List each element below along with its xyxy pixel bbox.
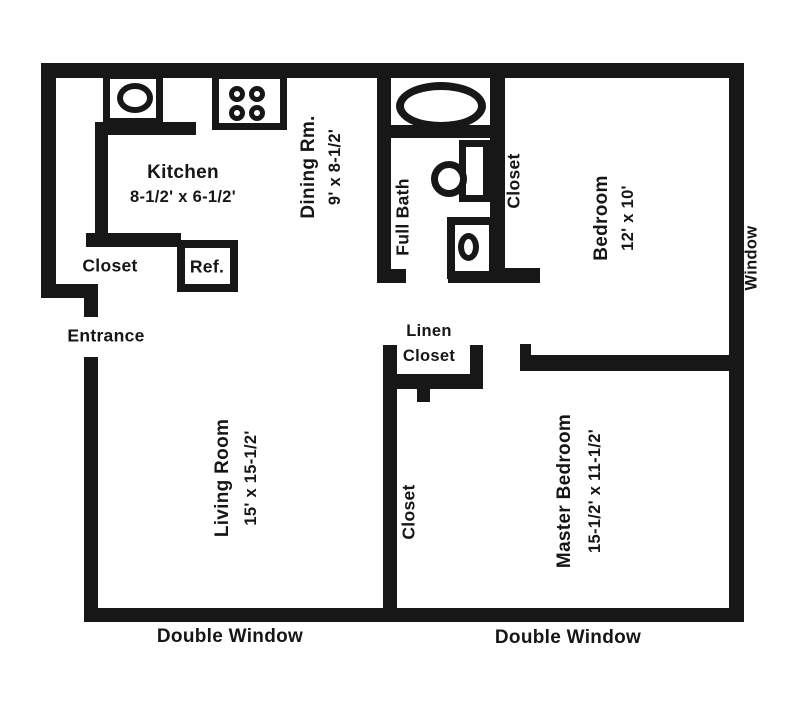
wall-entry-closet-top xyxy=(86,233,181,247)
floor-plan: Kitchen 8-1/2' x 6-1/2' Closet Ref. Entr… xyxy=(0,0,800,719)
kitchen-label: Kitchen 8-1/2' x 6-1/2' xyxy=(130,160,236,210)
living-room-dims: 15' x 15-1/2' xyxy=(237,419,266,537)
stove-burner-icon xyxy=(229,86,245,102)
linen-closet-label: Linen Closet xyxy=(403,319,455,369)
master-bedroom-label: Master Bedroom 15-1/2' x 11-1/2' xyxy=(550,414,610,568)
wall-dining-bath xyxy=(377,70,391,283)
living-room-label: Living Room 15' x 15-1/2' xyxy=(208,419,266,537)
dining-room-label: Dining Rm. 9' x 8-1/2' xyxy=(296,115,348,218)
kitchen-sink-icon xyxy=(117,83,153,113)
toilet-bowl-icon xyxy=(458,233,479,261)
master-bedroom-name: Master Bedroom xyxy=(550,414,580,568)
window-label: Window xyxy=(743,226,762,291)
stove-burner-icon xyxy=(249,86,265,102)
stove-burner-icon xyxy=(229,105,245,121)
bedroom-dims: 12' x 10' xyxy=(615,175,642,261)
bedroom-name: Bedroom xyxy=(588,175,615,261)
wall-linen-closet-bottom xyxy=(388,374,483,389)
wall-linen-closet-right-stub xyxy=(470,345,483,376)
wall-entrance-stub xyxy=(84,284,98,317)
kitchen-dims: 8-1/2' x 6-1/2' xyxy=(130,185,236,210)
kitchen-name: Kitchen xyxy=(130,160,236,185)
master-closet-label: Closet xyxy=(399,484,420,539)
double-window-left-label: Double Window xyxy=(157,626,303,648)
wall-linen-door-tick xyxy=(417,389,430,402)
bathtub-icon xyxy=(396,82,486,130)
wall-bath-door-foot xyxy=(377,269,406,283)
bedroom-label: Bedroom 12' x 10' xyxy=(588,175,642,261)
double-window-right-label: Double Window xyxy=(495,627,641,649)
wall-outer-right xyxy=(729,63,744,622)
entry-closet-label: Closet xyxy=(82,256,137,277)
dining-room-dims: 9' x 8-1/2' xyxy=(322,115,348,218)
wall-outer-bottom xyxy=(84,608,744,622)
linen-closet-line2: Closet xyxy=(403,344,455,369)
dining-room-name: Dining Rm. xyxy=(296,115,322,218)
linen-closet-line1: Linen xyxy=(403,319,455,344)
stove-counter xyxy=(212,72,287,130)
wall-outer-left-upper xyxy=(41,63,56,298)
stove-burner-icon xyxy=(249,105,265,121)
wall-kitchen-left xyxy=(95,122,108,247)
master-bedroom-dims: 15-1/2' x 11-1/2' xyxy=(580,414,610,568)
wall-master-bedroom-top-tick xyxy=(520,344,531,357)
wall-master-bedroom-top xyxy=(520,355,733,371)
refrigerator-label: Ref. xyxy=(190,257,224,278)
entrance-label: Entrance xyxy=(67,326,144,347)
wall-outer-left-lower xyxy=(84,357,98,622)
full-bath-label: Full Bath xyxy=(393,178,414,256)
bath-sink-icon xyxy=(431,161,467,197)
bath-closet-label: Closet xyxy=(504,153,525,208)
living-room-name: Living Room xyxy=(208,419,237,537)
